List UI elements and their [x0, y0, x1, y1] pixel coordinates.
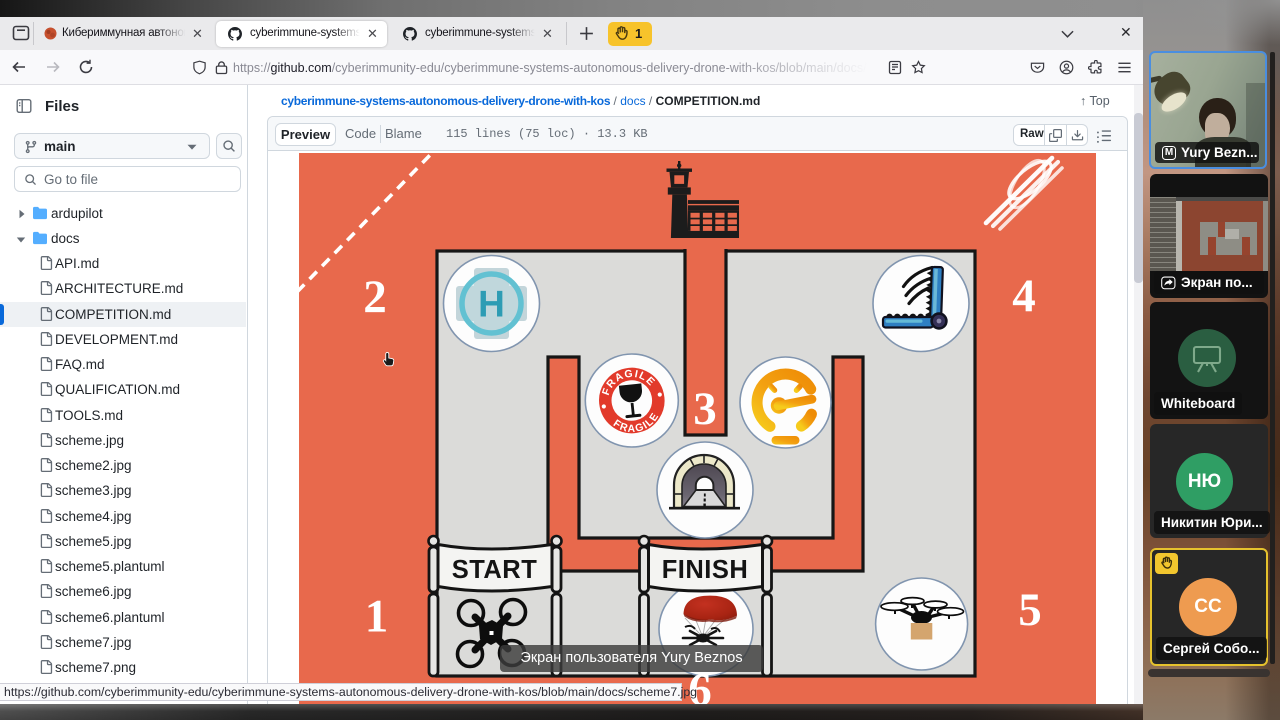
svg-text:2: 2: [363, 271, 387, 323]
svg-text:4: 4: [1012, 270, 1036, 322]
svg-text:1: 1: [365, 591, 389, 643]
svg-text:3: 3: [693, 383, 717, 435]
svg-text:FINISH: FINISH: [662, 556, 749, 584]
svg-text:5: 5: [1018, 584, 1042, 636]
svg-text:START: START: [452, 556, 538, 584]
svg-text:H: H: [478, 284, 505, 325]
